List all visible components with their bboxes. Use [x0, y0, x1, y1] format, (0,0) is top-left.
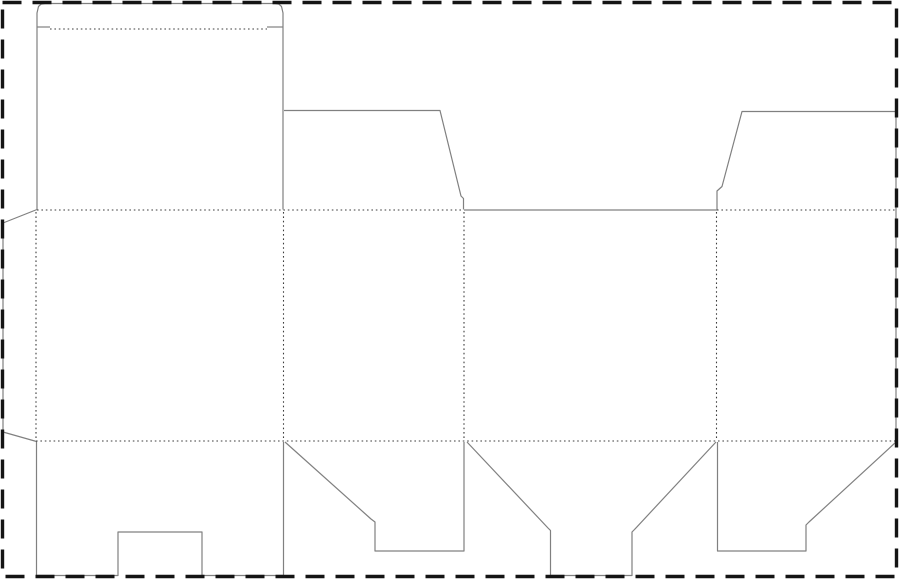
dieline-page [0, 0, 900, 580]
canvas-background [0, 0, 900, 580]
dieline-drawing [0, 0, 900, 580]
